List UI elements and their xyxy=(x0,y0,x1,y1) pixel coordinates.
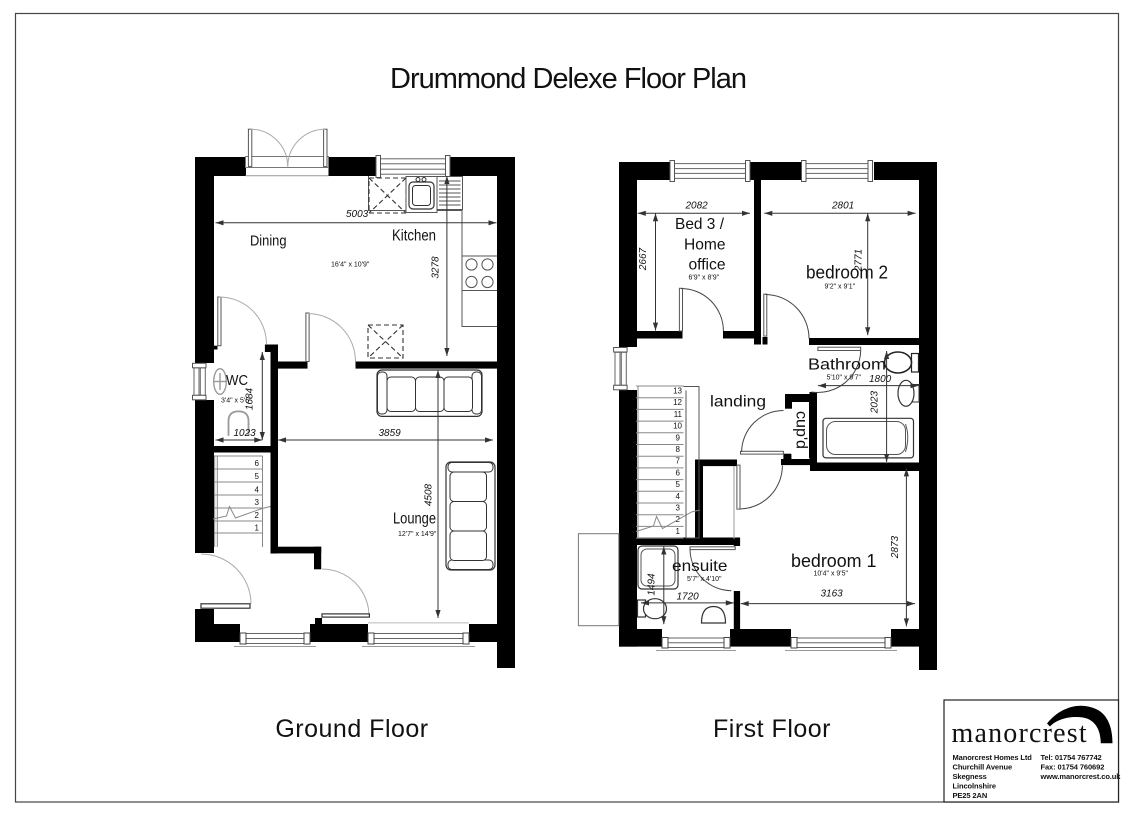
svg-text:Lounge: Lounge xyxy=(393,511,436,528)
svg-text:Fax: 01754 760692: Fax: 01754 760692 xyxy=(1041,763,1105,772)
svg-text:12'7" x 14'9": 12'7" x 14'9" xyxy=(398,531,437,538)
svg-text:landing: landing xyxy=(710,394,766,411)
svg-text:5: 5 xyxy=(255,472,260,481)
svg-text:4: 4 xyxy=(676,492,681,501)
svg-text:First Floor: First Floor xyxy=(713,715,831,743)
svg-text:9'2" x 9'1": 9'2" x 9'1" xyxy=(825,284,856,291)
svg-text:1023: 1023 xyxy=(234,428,257,439)
svg-text:1: 1 xyxy=(255,524,260,533)
svg-text:3: 3 xyxy=(255,498,260,507)
svg-text:1: 1 xyxy=(676,527,681,536)
svg-text:Bed 3 /: Bed 3 / xyxy=(675,216,725,233)
svg-text:www.manorcrest.co.uk: www.manorcrest.co.uk xyxy=(1040,772,1122,781)
svg-text:6'9" x 8'9": 6'9" x 8'9" xyxy=(689,275,720,282)
svg-text:Home: Home xyxy=(684,237,726,254)
svg-text:12: 12 xyxy=(673,398,682,407)
svg-text:2873: 2873 xyxy=(890,535,901,559)
svg-text:6: 6 xyxy=(255,459,260,468)
svg-text:1720: 1720 xyxy=(677,592,700,603)
svg-text:2667: 2667 xyxy=(638,247,649,271)
svg-text:Kitchen: Kitchen xyxy=(392,228,436,245)
svg-text:2771: 2771 xyxy=(854,249,865,272)
svg-text:Bathroom: Bathroom xyxy=(808,357,886,374)
svg-text:3163: 3163 xyxy=(821,589,844,600)
svg-text:Ground Floor: Ground Floor xyxy=(275,715,428,743)
svg-text:WC: WC xyxy=(226,372,248,389)
svg-text:Tel: 01754 767742: Tel: 01754 767742 xyxy=(1041,753,1102,762)
svg-text:Churchill Avenue: Churchill Avenue xyxy=(953,763,1013,772)
svg-text:Drummond Delexe Floor Plan: Drummond Delexe Floor Plan xyxy=(390,63,746,95)
svg-text:16'4" x 10'9": 16'4" x 10'9" xyxy=(331,262,370,269)
svg-text:5'10" x 9'7": 5'10" x 9'7" xyxy=(827,375,862,382)
svg-text:3: 3 xyxy=(676,504,681,513)
svg-text:office: office xyxy=(689,257,726,274)
svg-text:3278: 3278 xyxy=(431,256,442,279)
svg-text:bedroom 2: bedroom 2 xyxy=(806,262,888,283)
svg-text:6: 6 xyxy=(676,468,681,477)
svg-text:cup'd: cup'd xyxy=(793,411,810,449)
svg-text:bedroom 1: bedroom 1 xyxy=(791,550,877,571)
svg-text:2801: 2801 xyxy=(831,201,854,212)
svg-text:2023: 2023 xyxy=(870,390,881,414)
svg-text:PE25 2AN: PE25 2AN xyxy=(953,791,988,800)
svg-text:13: 13 xyxy=(673,387,682,396)
svg-text:5003: 5003 xyxy=(346,209,369,220)
svg-text:11: 11 xyxy=(674,410,683,419)
svg-text:3859: 3859 xyxy=(379,428,402,439)
svg-text:4508: 4508 xyxy=(424,483,435,506)
svg-text:Lincolnshire: Lincolnshire xyxy=(953,782,996,791)
svg-text:2: 2 xyxy=(255,511,260,520)
svg-text:Skegness: Skegness xyxy=(953,772,987,781)
svg-text:manorcrest: manorcrest xyxy=(952,718,1088,749)
svg-text:Manorcrest Homes Ltd: Manorcrest Homes Ltd xyxy=(953,753,1033,762)
svg-text:10'4" x 9'5": 10'4" x 9'5" xyxy=(814,571,849,578)
svg-text:8: 8 xyxy=(676,445,681,454)
svg-text:7: 7 xyxy=(676,457,681,466)
svg-text:Dining: Dining xyxy=(250,233,287,250)
svg-text:10: 10 xyxy=(673,422,682,431)
svg-text:ensuite: ensuite xyxy=(672,558,728,575)
svg-text:1494: 1494 xyxy=(647,573,658,596)
svg-text:9: 9 xyxy=(676,433,681,442)
svg-text:1800: 1800 xyxy=(869,374,892,385)
svg-text:5: 5 xyxy=(676,480,681,489)
svg-text:4: 4 xyxy=(255,486,260,495)
svg-text:2082: 2082 xyxy=(685,201,709,212)
svg-text:1684: 1684 xyxy=(245,387,256,410)
svg-text:5'7" x 4'10": 5'7" x 4'10" xyxy=(687,576,722,583)
